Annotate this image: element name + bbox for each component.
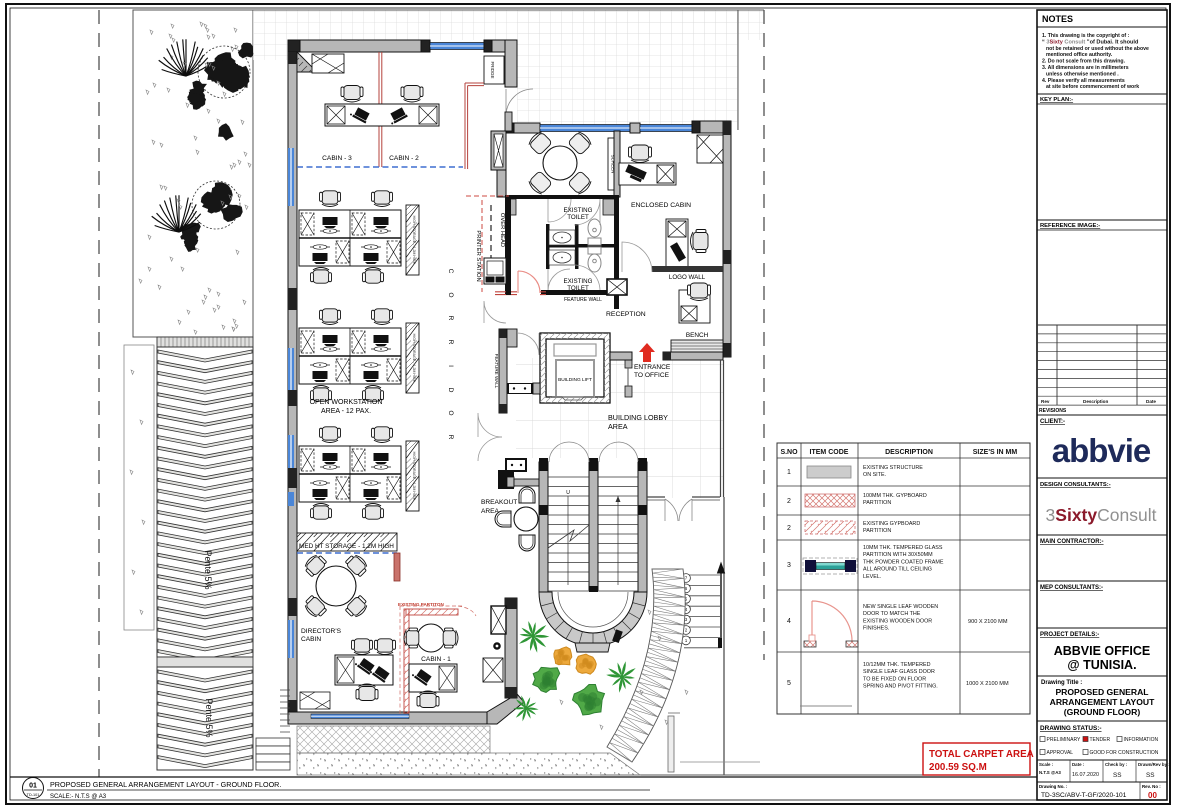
svg-text:2: 2 [787,498,791,505]
svg-text:1: 1 [787,469,791,476]
svg-text:5: 5 [787,680,791,687]
svg-text:4. Please verify all measureme: 4. Please verify all measurements [1042,78,1125,84]
svg-text:S.NO: S.NO [780,449,798,456]
svg-text:1000 X 2100 MM: 1000 X 2100 MM [966,681,1009,687]
svg-text:EXISTING STRUCTURE: EXISTING STRUCTURE [863,465,923,471]
svg-text:NEW SINGLE LEAF WOODEN: NEW SINGLE LEAF WOODEN [863,604,938,610]
svg-text:RECEPTION: RECEPTION [606,311,646,318]
svg-text:THK POWDER COATED FRAME: THK POWDER COATED FRAME [863,559,944,565]
svg-text:4: 4 [787,618,791,625]
svg-text:R: R [447,316,454,321]
svg-text:CABIN - 3: CABIN - 3 [322,155,352,162]
svg-text:FEATURE WALL: FEATURE WALL [494,354,499,389]
svg-text:FRIDGE: FRIDGE [490,61,495,78]
svg-text:OPEN WORKSTATION: OPEN WORKSTATION [310,399,383,406]
svg-text:Rev: Rev [1041,399,1050,404]
svg-text:SS: SS [1113,772,1122,779]
svg-text:3: 3 [787,562,791,569]
svg-text:EXISTING GYPBOARD: EXISTING GYPBOARD [863,521,920,527]
svg-text:Pente 5%: Pente 5% [203,550,213,589]
svg-text:N.T.S @A3: N.T.S @A3 [1039,770,1061,775]
svg-text:100MM THK. GYPBOARD: 100MM THK. GYPBOARD [863,493,927,499]
svg-text:LEVEL.: LEVEL. [863,574,881,580]
svg-text:MAIN CONTRACTOR:-: MAIN CONTRACTOR:- [1040,539,1104,545]
svg-text:Date: Date [1146,399,1156,404]
svg-text:Drawing Title :: Drawing Title : [1041,680,1082,686]
svg-text:SCALE:- N.T.S @ A3: SCALE:- N.T.S @ A3 [50,794,107,800]
svg-text:TD-101: TD-101 [27,793,40,797]
svg-text:01: 01 [29,783,37,790]
svg-text:CABIN - 2: CABIN - 2 [389,155,419,162]
svg-text:R: R [447,340,454,345]
svg-text:CABIN - 1: CABIN - 1 [421,656,451,663]
svg-text:KEY PLAN:-: KEY PLAN:- [1040,97,1073,103]
svg-text:(GROUND FLOOR): (GROUND FLOOR) [1064,707,1141,717]
svg-text:R: R [447,435,454,440]
svg-text:CLIENT:-: CLIENT:- [1040,419,1065,425]
svg-text:2: 2 [787,525,791,532]
svg-text:SIZE'S IN MM: SIZE'S IN MM [973,449,1018,456]
svg-text:unless otherwise mentioned .: unless otherwise mentioned . [1046,71,1119,77]
svg-text:PARTITION: PARTITION [863,528,891,534]
svg-text:TENDER: TENDER [1090,737,1111,743]
svg-text:SS: SS [1146,772,1155,779]
svg-text:1. This drawing is the copyrig: 1. This drawing is the copyright of : [1042,33,1130,39]
svg-text:GOOD FOR CONSTRUCTION: GOOD FOR CONSTRUCTION [1090,750,1159,756]
svg-text:Check by :: Check by : [1105,762,1128,767]
svg-text:PROPOSED GENERAL ARRANGEMENT L: PROPOSED GENERAL ARRANGEMENT LAYOUT - GR… [50,780,281,789]
svg-text:HIGH STORAGE - 1.2M HIGH: HIGH STORAGE - 1.2M HIGH [412,334,416,383]
svg-text:DESIGN CONSULTANTS:-: DESIGN CONSULTANTS:- [1040,482,1111,488]
svg-text:ENCLOSED CABIN: ENCLOSED CABIN [631,202,691,209]
svg-text:ENTRANCE: ENTRANCE [634,364,671,371]
svg-text:BUILDING LIFT: BUILDING LIFT [558,377,592,383]
svg-text:DRAWING STATUS:-: DRAWING STATUS:- [1040,725,1102,732]
svg-text:Drawn/Rev by :: Drawn/Rev by : [1138,762,1170,767]
svg-text:ALL AROUND TILL CEILING: ALL AROUND TILL CEILING [863,567,932,573]
svg-text:NOTES: NOTES [1042,14,1073,24]
svg-text:900 X 2100 MM: 900 X 2100 MM [968,619,1008,625]
svg-text:TO BE FIXED ON FLOOR: TO BE FIXED ON FLOOR [863,676,926,682]
svg-text:10/12MM THK. TEMPERED: 10/12MM THK. TEMPERED [863,662,931,668]
svg-text:2. Do not scale from this draw: 2. Do not scale from this drawing. [1042,59,1126,65]
svg-text:I: I [447,365,454,367]
svg-text:BUILDING LOBBY: BUILDING LOBBY [608,413,668,422]
svg-text:C: C [447,269,454,274]
svg-text:BREAKOUT: BREAKOUT [481,499,517,506]
svg-text:PRINTER STATION: PRINTER STATION [475,230,481,281]
svg-text:00: 00 [1148,791,1157,800]
svg-text:mentioned office authority.: mentioned office authority. [1046,52,1113,58]
svg-text:REFERENCE IMAGE:-: REFERENCE IMAGE:- [1040,223,1100,229]
svg-text:FINISHES.: FINISHES. [863,626,889,632]
svg-text:DIRECTOR'S: DIRECTOR'S [301,628,342,635]
svg-text:200.59 SQ.M: 200.59 SQ.M [929,762,987,773]
svg-text:PARTITION: PARTITION [863,500,891,506]
svg-text:HIGH STORAGE - 1.2M HIGH: HIGH STORAGE - 1.2M HIGH [412,452,416,501]
svg-text:abbvie: abbvie [1052,432,1151,469]
svg-text:Pente 5%: Pente 5% [204,698,214,737]
svg-text:APPROVAL: APPROVAL [1047,750,1074,756]
svg-text:EXISTING: EXISTING [564,278,593,285]
svg-text:TOILET: TOILET [567,285,589,292]
svg-text:10MM THK. TEMPERED GLASS: 10MM THK. TEMPERED GLASS [863,545,943,551]
svg-text:TOTAL CARPET AREA: TOTAL CARPET AREA [929,749,1034,760]
svg-text:O: O [447,410,454,415]
svg-text:16.07.2020: 16.07.2020 [1072,772,1099,778]
svg-text:DESCRIPTION: DESCRIPTION [885,449,933,456]
svg-text:TD-3SC/ABV-T-GF/2020-101: TD-3SC/ABV-T-GF/2020-101 [1041,792,1127,799]
svg-text:Date :: Date : [1072,762,1085,767]
svg-text:FEATURE WALL: FEATURE WALL [564,297,602,303]
svg-text:PROJECT DETAILS:-: PROJECT DETAILS:- [1040,632,1099,638]
svg-text:MED HT STORAGE - 1.2M HIGH: MED HT STORAGE - 1.2M HIGH [299,543,394,550]
svg-text:ITEM CODE: ITEM CODE [810,449,849,456]
svg-text:OVER HEAD: OVER HEAD [499,213,505,247]
svg-text:Scale :: Scale : [1039,762,1054,767]
svg-text:HIGH STORAGE - 1.2M HIGH: HIGH STORAGE - 1.2M HIGH [412,216,416,265]
svg-text:ABBVIE OFFICE: ABBVIE OFFICE [1054,644,1151,658]
svg-text:EXISTING: EXISTING [564,207,593,214]
svg-text:U: U [566,490,570,496]
svg-text:3SixtyConsult: 3SixtyConsult [1046,505,1157,525]
svg-text:ARRANGEMENT LAYOUT: ARRANGEMENT LAYOUT [1050,697,1155,707]
svg-text:CABIN: CABIN [301,636,321,643]
svg-text:3. All dimensions are in milli: 3. All dimensions are in millimeters [1042,65,1129,71]
svg-text:D: D [447,388,454,393]
svg-text:MEP CONSULTANTS:-: MEP CONSULTANTS:- [1040,585,1103,591]
svg-text:AREA - 12 PAX.: AREA - 12 PAX. [321,408,371,415]
svg-text:Drawing No. :: Drawing No. : [1039,784,1068,789]
svg-text:PRELIMINARY: PRELIMINARY [1047,737,1081,743]
svg-text:AREA: AREA [608,422,628,431]
svg-text:at site before commencement of: at site before commencement of work [1046,84,1139,90]
svg-text:INFORMATION: INFORMATION [1124,737,1159,743]
svg-text:SPRING AND PIVOT FITTING.: SPRING AND PIVOT FITTING. [863,684,938,690]
svg-text:TO OFFICE: TO OFFICE [634,372,670,379]
svg-text:@ TUNISIA.: @ TUNISIA. [1067,658,1136,672]
svg-text:not be retained or used withou: not be retained or used without the abov… [1046,46,1149,52]
svg-text:O: O [447,292,454,297]
svg-text:PARTITION WITH 30X50MM: PARTITION WITH 30X50MM [863,552,933,558]
svg-text:PROPOSED GENERAL: PROPOSED GENERAL [1055,687,1148,697]
svg-text:Rev. No :: Rev. No : [1142,784,1161,789]
svg-text:BENCH: BENCH [686,332,709,339]
svg-text:“ 3Sixty Consult ”of Dubai. It: “ 3Sixty Consult ”of Dubai. It should [1042,39,1139,45]
svg-text:ON SITE.: ON SITE. [863,472,886,478]
svg-text:Description: Description [1083,399,1108,404]
svg-text:DOOR TO MATCH THE: DOOR TO MATCH THE [863,611,921,617]
svg-text:REVISIONS: REVISIONS [1039,408,1067,414]
svg-text:EXISTING WOODEN DOOR: EXISTING WOODEN DOOR [863,618,932,624]
svg-text:TOILET: TOILET [567,214,589,221]
svg-text:SINGLE LEAF GLASS DOOR: SINGLE LEAF GLASS DOOR [863,669,935,675]
svg-text:LOGO WALL: LOGO WALL [669,274,706,281]
